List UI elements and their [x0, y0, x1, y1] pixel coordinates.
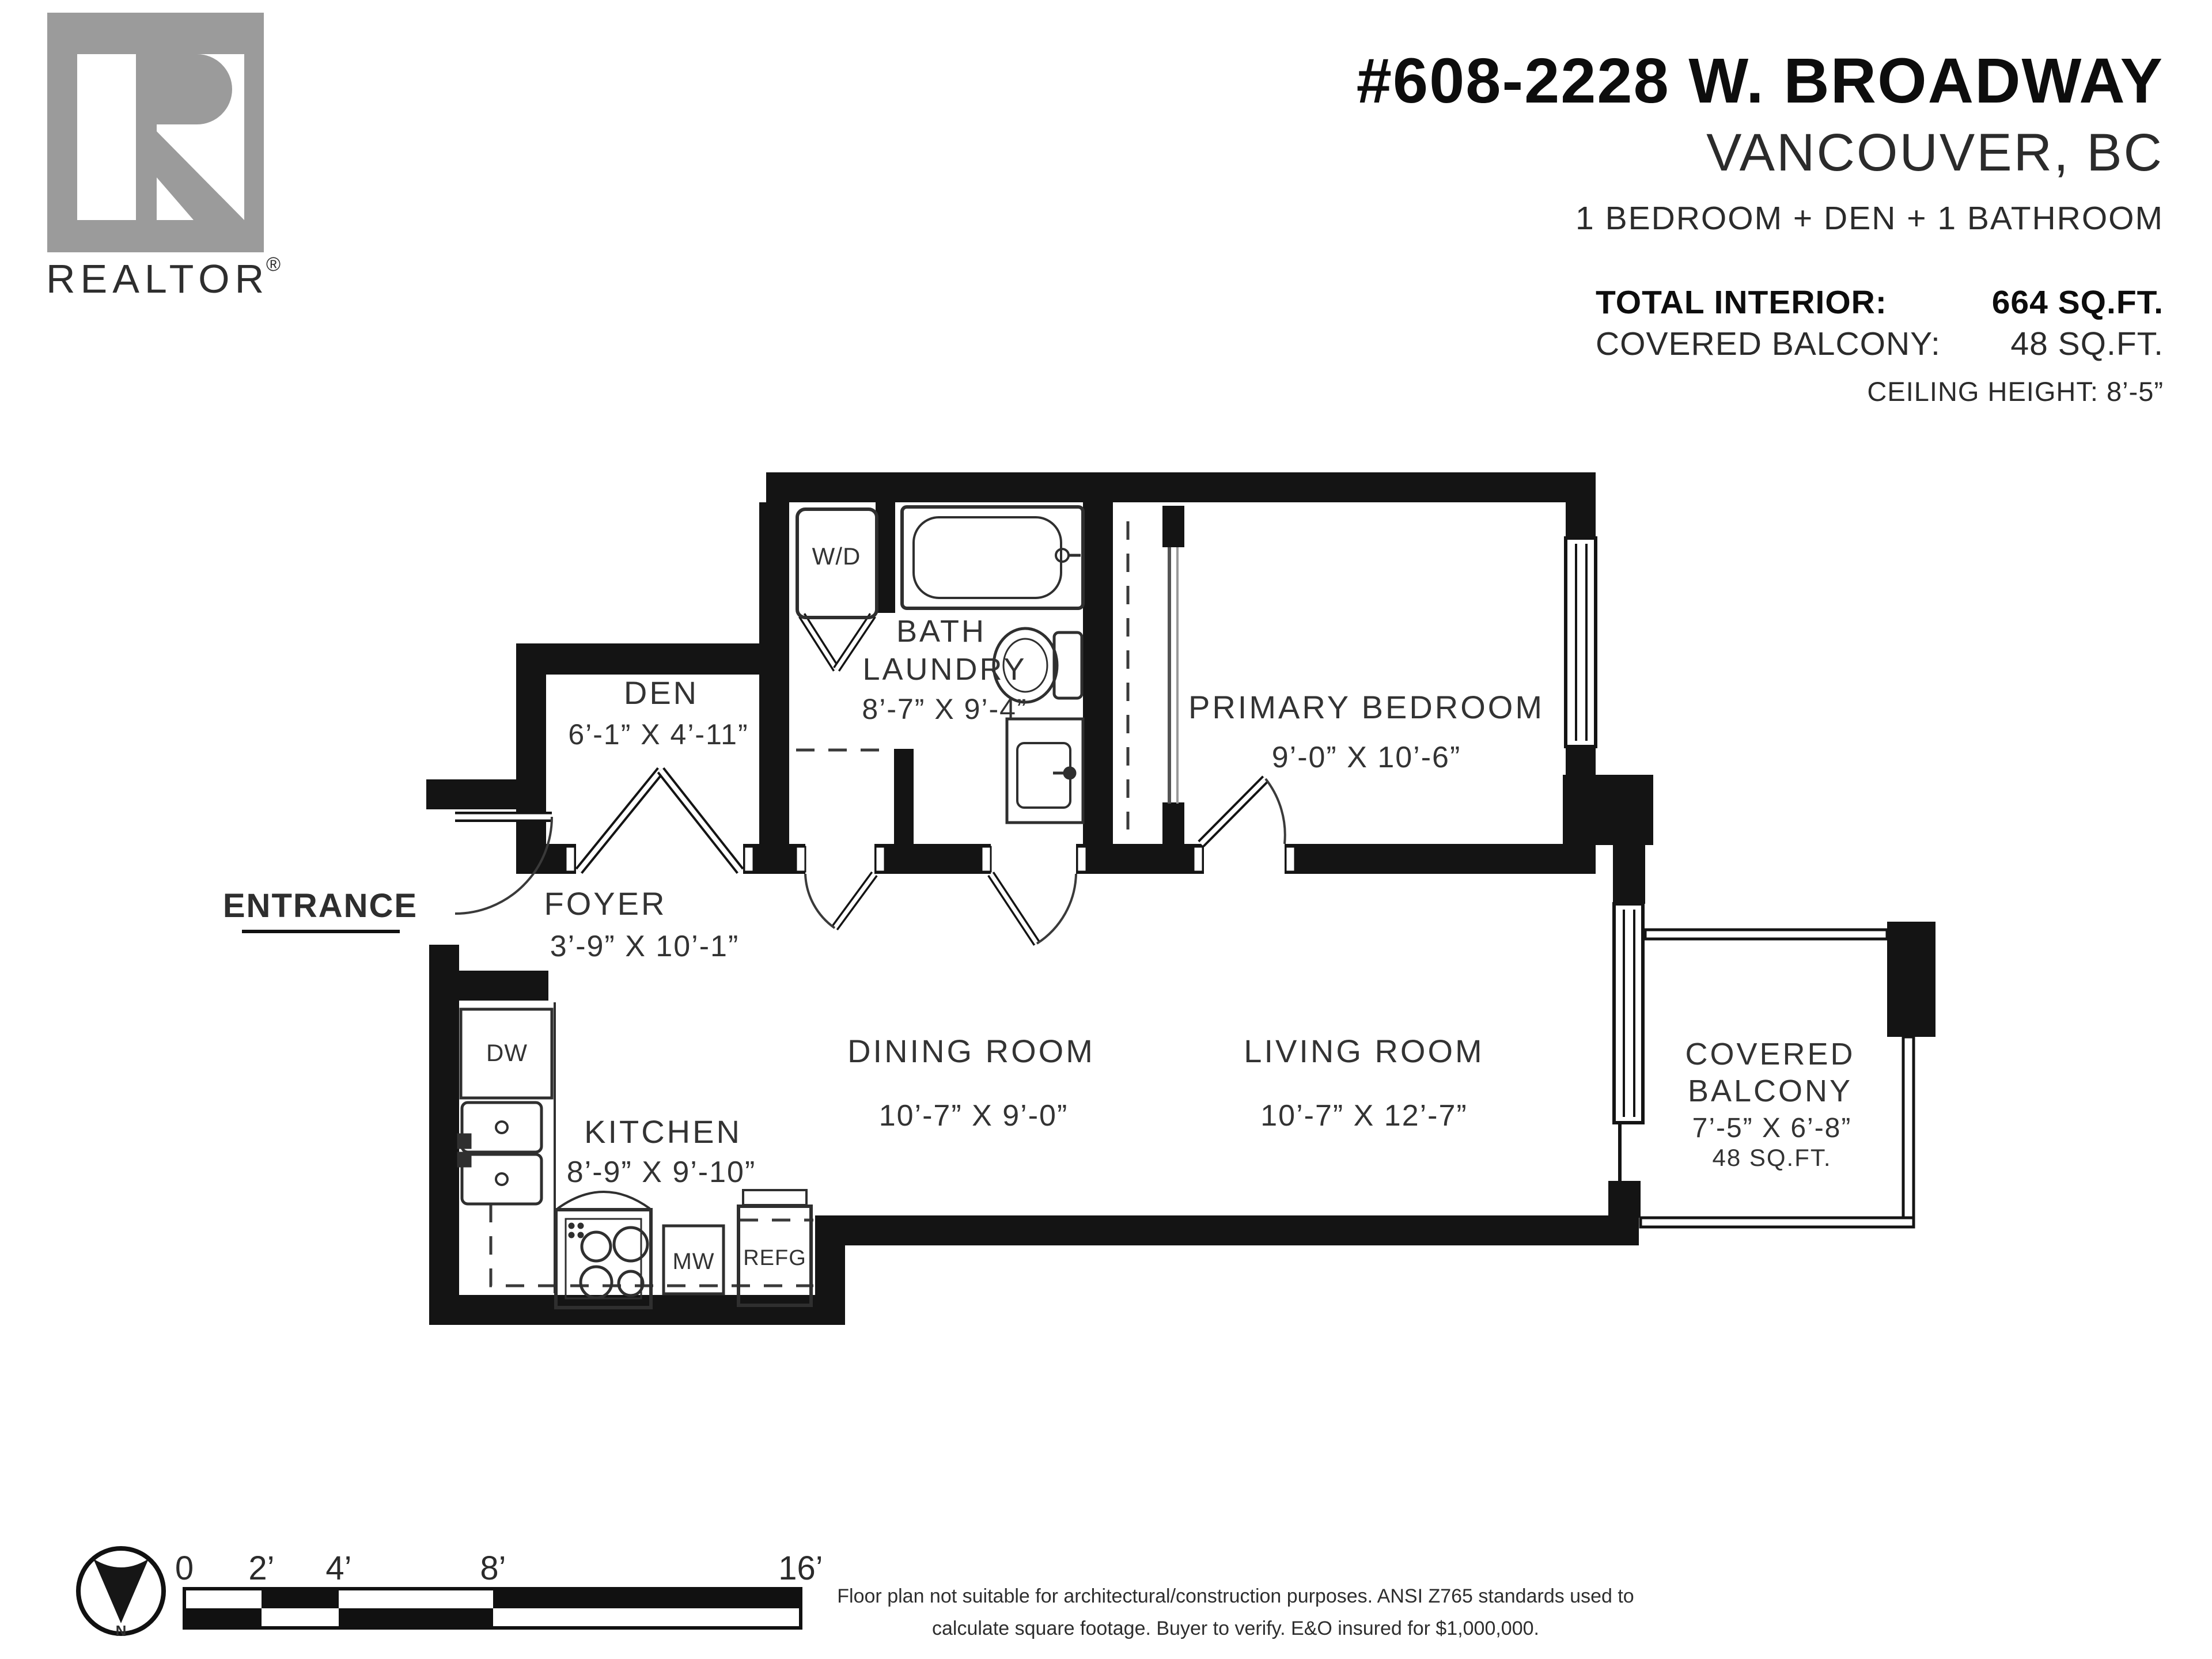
den-double-door — [579, 770, 740, 871]
washer-dryer-label: W/D — [812, 543, 861, 570]
kitchen-sink — [457, 1103, 541, 1204]
bath-dims: 8’-7” X 9’-4” — [862, 693, 1027, 725]
disclaimer-line1: Floor plan not suitable for architectura… — [837, 1585, 1634, 1607]
living-room-label: LIVING ROOM — [1244, 1033, 1484, 1069]
disclaimer: Floor plan not suitable for architectura… — [837, 1585, 1634, 1639]
balcony-dims: 7’-5” X 6’-8” — [1692, 1113, 1852, 1143]
den-dims: 6’-1” X 4’-11” — [568, 718, 748, 751]
kitchen-label: KITCHEN — [584, 1113, 742, 1150]
covered-balcony-label: COVERED BALCONY: — [1596, 325, 1941, 362]
balcony-label-line2: BALCONY — [1688, 1074, 1853, 1108]
scale-tick-2: 2’ — [248, 1550, 274, 1587]
living-room-window — [1614, 904, 1643, 1181]
living-room-dims: 10’-7” X 12’-7” — [1260, 1099, 1467, 1132]
den-label: DEN — [624, 675, 699, 711]
bath-label-line2: LAUNDRY — [862, 652, 1027, 687]
compass-north-label: N — [116, 1622, 127, 1639]
scale-tick-16: 16’ — [778, 1550, 823, 1587]
unit-configuration: 1 BEDROOM + DEN + 1 BATHROOM — [1575, 200, 2164, 237]
north-compass-icon: N — [78, 1548, 164, 1639]
primary-bedroom-dims: 9’-0” X 10’-6” — [1272, 741, 1461, 774]
realtor-logo-icon — [47, 13, 264, 252]
bathtub — [902, 507, 1083, 608]
scale-tick-8: 8’ — [480, 1550, 506, 1587]
entrance-annotation: ENTRANCE — [223, 887, 418, 933]
realtor-logo-text: REALTOR — [46, 256, 269, 301]
balcony-area: 48 SQ.FT. — [1712, 1144, 1831, 1171]
entrance-label: ENTRANCE — [223, 887, 418, 925]
floorplan-page: REALTOR ® #608-2228 W. BROADWAY VANCOUVE… — [0, 0, 2212, 1659]
microwave-label: MW — [672, 1249, 714, 1274]
scale-tick-0: 0 — [175, 1550, 194, 1587]
bedroom-closet-slider — [1169, 547, 1177, 804]
ceiling-height: CEILING HEIGHT: 8’-5” — [1867, 376, 2164, 407]
covered-balcony-value: 48 SQ.FT. — [2010, 325, 2164, 362]
bedroom-door — [1201, 779, 1285, 844]
kitchen-dims: 8’-9” X 9’-10” — [567, 1156, 756, 1189]
page-title: #608-2228 W. BROADWAY — [1357, 46, 2164, 116]
primary-bedroom-label: PRIMARY BEDROOM — [1188, 689, 1544, 725]
vanity-sink — [1007, 719, 1083, 823]
disclaimer-line2: calculate square footage. Buyer to verif… — [932, 1618, 1539, 1639]
title-block: #608-2228 W. BROADWAY VANCOUVER, BC 1 BE… — [1357, 46, 2164, 407]
total-interior-value: 664 SQ.FT. — [1992, 284, 2164, 321]
scale-tick-4: 4’ — [325, 1550, 351, 1587]
dining-room-dims: 10’-7” X 9’-0” — [879, 1099, 1069, 1132]
fridge-label: REFG — [743, 1246, 806, 1270]
registered-mark: ® — [266, 253, 281, 275]
bath-door — [991, 874, 1076, 944]
foyer-closet-door — [805, 874, 874, 928]
dining-room-label: DINING ROOM — [847, 1033, 1095, 1069]
bath-label-line1: BATH — [896, 614, 986, 649]
page-subtitle-city: VANCOUVER, BC — [1706, 123, 2164, 182]
foyer-dims: 3’-9” X 10’-1” — [550, 930, 740, 963]
balcony-label-line1: COVERED — [1685, 1037, 1855, 1071]
foyer-label: FOYER — [544, 885, 667, 922]
dishwasher-label: DW — [486, 1039, 528, 1066]
scale-bar: 0 2’ 4’ 8’ 16’ — [175, 1550, 823, 1628]
total-interior-label: TOTAL INTERIOR: — [1596, 284, 1887, 321]
floorplan-canvas: REALTOR ® #608-2228 W. BROADWAY VANCOUVE… — [0, 0, 2212, 1659]
stove — [556, 1192, 651, 1308]
bedroom-window — [1566, 538, 1596, 747]
